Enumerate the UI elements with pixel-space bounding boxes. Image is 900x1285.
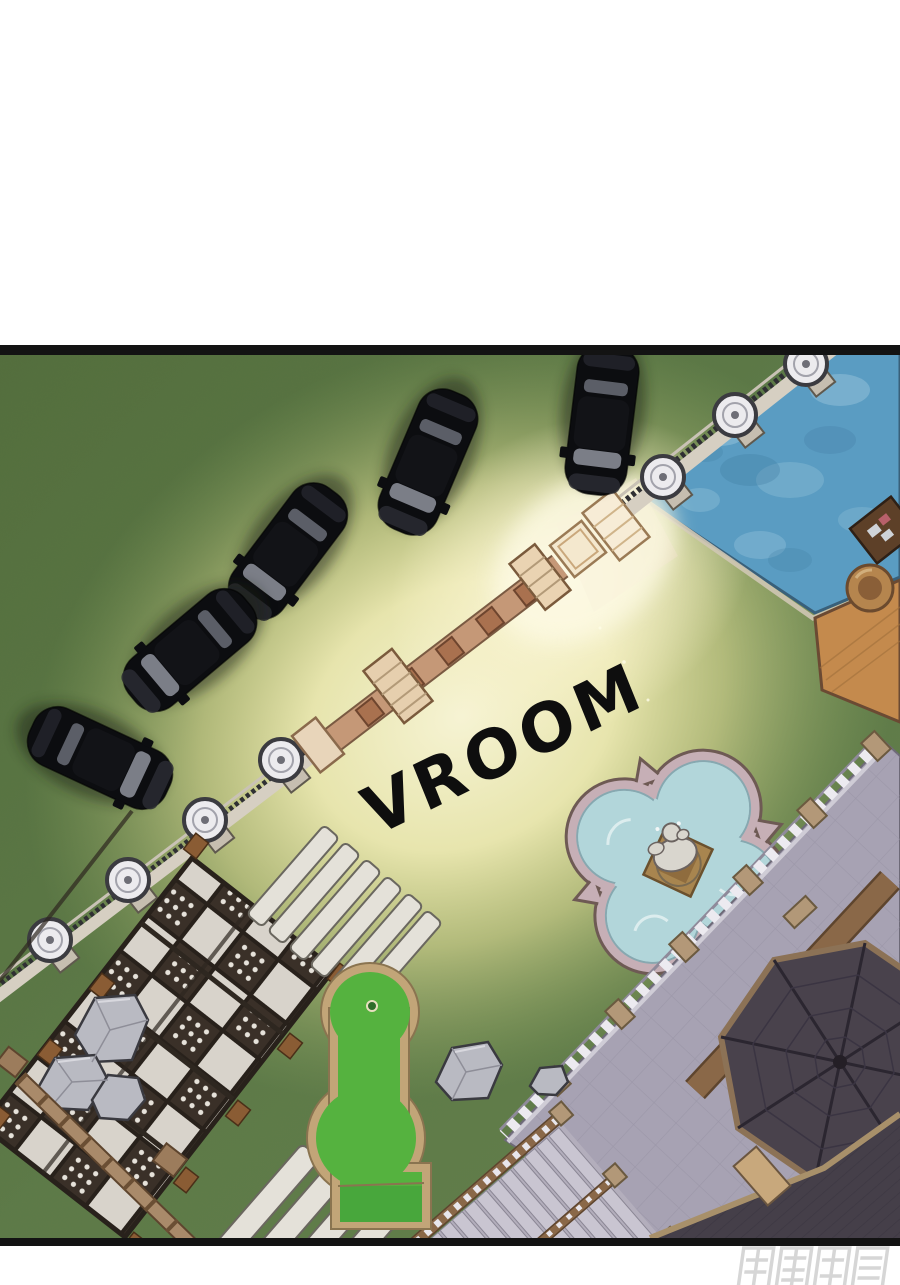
panel-illustration: VROOM	[0, 0, 900, 1285]
deck-planter	[847, 565, 893, 611]
panel-border-top	[0, 345, 900, 355]
golf-hole	[367, 1001, 377, 1011]
panel-border-bottom	[0, 1238, 900, 1246]
comic-page: VROOM	[0, 0, 900, 1285]
